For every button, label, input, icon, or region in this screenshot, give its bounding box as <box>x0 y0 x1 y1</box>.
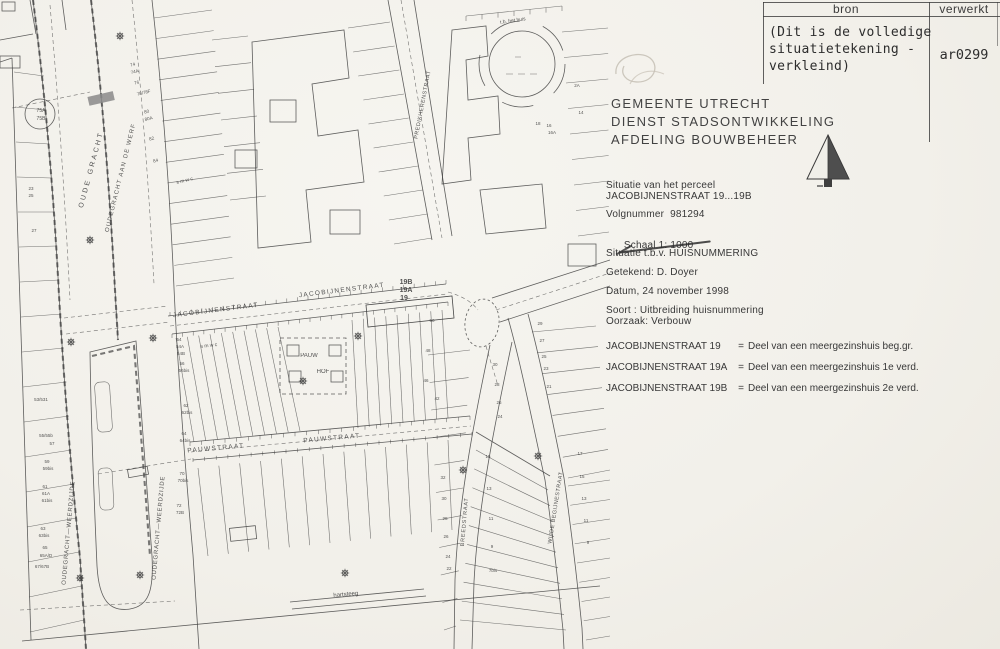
map-label: JACOBIJNENSTRAAT <box>299 282 386 299</box>
entry-row-19b: JACOBIJNENSTRAAT 19B = Deel van een meer… <box>606 383 996 394</box>
map-label: 65A/D <box>40 553 53 558</box>
map-label: 56 <box>179 361 185 366</box>
org-name: GEMEENTE UTRECHT <box>611 96 770 111</box>
map-label: 42 <box>434 396 440 401</box>
verwerkt-code: ar0299 <box>929 47 999 63</box>
map-label: hartsteeg <box>333 591 358 599</box>
field-getekend: Getekend: D. Doyer <box>606 267 698 278</box>
entry-separator: = <box>734 362 748 373</box>
field-datum: Datum, 24 november 1998 <box>606 286 729 297</box>
map-label: 29 <box>537 321 543 326</box>
entry-address: JACOBIJNENSTRAAT 19B <box>606 383 734 394</box>
tree-icon <box>149 334 157 342</box>
map-label: 54B <box>177 351 185 356</box>
map-label: PAUWSTRAAT <box>303 433 361 445</box>
map-label: OUDE GRACHT <box>78 130 105 208</box>
entry-description: Deel van een meergezinshuis beg.gr. <box>748 341 913 352</box>
map-label: OUDEGRACHT AAN DE WERF <box>105 123 138 233</box>
map-label: 63 <box>40 526 46 531</box>
map-label: 74 <box>130 61 137 67</box>
map-label: 61bis <box>42 498 54 503</box>
tree-icons <box>67 32 542 582</box>
entry-address: JACOBIJNENSTRAAT 19 <box>606 341 734 352</box>
map-label: 64 <box>181 431 187 436</box>
map-label: 56bis <box>179 368 191 373</box>
tree-icon <box>459 466 467 474</box>
map-label: 25 <box>541 354 547 359</box>
map-label: 55/55b <box>39 433 53 438</box>
table-header-rule <box>763 16 1000 17</box>
map-label: 15 <box>579 474 585 479</box>
map-label: PAUW <box>300 353 318 359</box>
map-label: 72 <box>176 503 182 508</box>
map-label: 30 <box>441 496 447 501</box>
map-label: 59 <box>44 459 50 464</box>
field-situatie-label: Situatie van het perceel <box>606 180 715 191</box>
tree-icon <box>116 32 124 40</box>
map-label: 28 <box>442 516 448 521</box>
map-label: s m w c <box>176 176 194 186</box>
map-label: t.b. het huis <box>500 16 527 26</box>
map-label: 65 <box>42 545 48 550</box>
entry-address: JACOBIJNENSTRAAT 19A <box>606 362 734 373</box>
entry-row-19a: JACOBIJNENSTRAAT 19A = Deel van een meer… <box>606 362 996 373</box>
map-label: 64bis <box>180 438 192 443</box>
map-label: 54 <box>176 337 182 342</box>
north-arrow-icon <box>804 132 852 190</box>
tree-icon <box>76 574 84 582</box>
table-header-verwerkt: verwerkt <box>929 2 999 16</box>
map-traffic-island <box>448 292 502 386</box>
map-label: 27 <box>31 228 37 233</box>
map-label: 82 <box>149 135 156 141</box>
map-label: 30 <box>492 362 498 367</box>
round-building <box>489 31 555 97</box>
map-label: PREDIKHERENSTRAAT <box>413 70 432 140</box>
map-label: 9 <box>587 540 590 545</box>
map-label: 63bis <box>39 533 51 538</box>
map-label: 15 <box>485 454 491 459</box>
map-pauwhof <box>280 338 346 394</box>
map-label: 13 <box>486 486 492 491</box>
map-label: 7bis <box>489 568 498 573</box>
map-label: 26 <box>443 534 449 539</box>
map-label: PAUWSTRAAT <box>187 443 245 455</box>
map-label: 17 <box>577 451 583 456</box>
map-label: 24 <box>497 414 503 419</box>
map-label: 11 <box>584 518 589 523</box>
entry-separator: = <box>734 341 748 352</box>
entry-description: Deel van een meergezinshuis 2e verd. <box>748 383 919 394</box>
field-oorzaak: Oorzaak: Verbouw <box>606 316 691 327</box>
map-label: 16 <box>546 123 552 128</box>
entry-row-19: JACOBIJNENSTRAAT 19 = Deel van een meerg… <box>606 341 996 352</box>
table-header-bron: bron <box>763 2 929 16</box>
map-label: 62bis <box>182 410 194 415</box>
table-column-border <box>929 2 930 142</box>
map-label: 9 <box>491 544 494 549</box>
map-label: 74A <box>130 68 139 75</box>
map-label: 25 <box>28 193 34 198</box>
scanned-document: OUDE GRACHTOUDEGRACHT AAN DE WERFOUDEGRA… <box>0 0 1000 649</box>
field-soort: Soort : Uitbreiding huisnummering <box>606 305 764 316</box>
map-label: 53/531 <box>34 397 48 402</box>
tree-icon <box>136 571 144 579</box>
map-label: 61 <box>42 484 48 489</box>
map-label: 80 <box>144 108 151 114</box>
tree-icon <box>354 332 362 340</box>
map-label: 78/78F <box>136 88 151 96</box>
map-label: 59bis <box>43 466 55 471</box>
map-label: 72B <box>176 510 184 515</box>
map-label: 22 <box>446 566 452 571</box>
bron-note-line-1: (Dit is de volledige <box>769 24 932 41</box>
field-tbv: Situatie t.b.v. HUISNUMMERING <box>606 248 758 259</box>
map-label: 57 <box>49 441 55 446</box>
map-label: 62 <box>183 403 189 408</box>
entry-separator: = <box>734 383 748 394</box>
map-west-parcels <box>0 0 66 640</box>
map-label: 26 <box>496 400 502 405</box>
bron-note-line-2: situatietekening - <box>769 41 915 58</box>
map-label: 70bis <box>178 478 190 483</box>
map-label: 19A <box>400 287 413 294</box>
map-label: 54A <box>176 344 184 349</box>
map-label: 32 <box>440 475 446 480</box>
map-label: 75B <box>37 116 47 122</box>
map-label: 80A <box>144 115 153 122</box>
map-label: 18 <box>535 121 541 126</box>
map-label: 14 <box>578 110 584 115</box>
map-label: HOF <box>317 369 330 375</box>
map-label: 19B <box>400 279 413 286</box>
map-label: s m w c <box>200 342 218 350</box>
map-dark-building <box>229 526 256 542</box>
map-label: 48 <box>425 348 431 353</box>
tree-icon <box>299 377 307 385</box>
field-volgnummer: Volgnummer 981294 <box>606 209 705 220</box>
situation-map: OUDE GRACHTOUDEGRACHT AAN DE WERFOUDEGRA… <box>0 0 610 649</box>
map-label: 76 <box>134 79 141 85</box>
map-label: 27 <box>539 338 545 343</box>
map-label: 24 <box>445 554 451 559</box>
map-label: 2A <box>574 83 580 88</box>
map-label: 61A <box>42 491 50 496</box>
map-label: 50 <box>429 318 435 323</box>
tree-icon <box>86 236 94 244</box>
map-label: 23 <box>543 366 549 371</box>
map-label: 21 <box>546 384 552 389</box>
map-label: 84 <box>153 157 160 163</box>
map-label: 13 <box>581 496 587 501</box>
map-label: 19 <box>400 295 408 302</box>
stamp-scribble <box>606 44 678 96</box>
field-perceel: JACOBIJNENSTRAAT 19...19B <box>606 191 752 202</box>
entry-description: Deel van een meergezinshuis 1e verd. <box>748 362 919 373</box>
map-label: 75A <box>37 108 47 114</box>
org-division: AFDELING BOUWBEHEER <box>611 132 798 147</box>
map-parcel-19-highlight <box>366 296 454 327</box>
bron-note-line-3: verkleind) <box>769 58 850 75</box>
map-label: 11 <box>489 516 494 521</box>
map-label: 70 <box>179 471 185 476</box>
map-boats <box>94 382 114 511</box>
map-label: 28 <box>494 382 500 387</box>
map-label: OUDEGRACHT—WEERDZIJDE <box>151 476 166 581</box>
tree-icon <box>534 452 542 460</box>
tree-icon <box>341 569 349 577</box>
map-label: OUDEGRACHT—WEERDZIJDE <box>61 481 76 586</box>
map-label: 23 <box>28 186 34 191</box>
map-label: JACOBIJNENSTRAAT <box>173 302 260 319</box>
map-label: 67/67B <box>35 564 49 569</box>
tree-icon <box>67 338 75 346</box>
map-label: 46 <box>423 378 429 383</box>
org-department: DIENST STADSONTWIKKELING <box>611 114 835 129</box>
map-label: WIJDE BEGIJNESTRAAT <box>547 471 564 544</box>
map-label: 16A <box>548 130 556 135</box>
